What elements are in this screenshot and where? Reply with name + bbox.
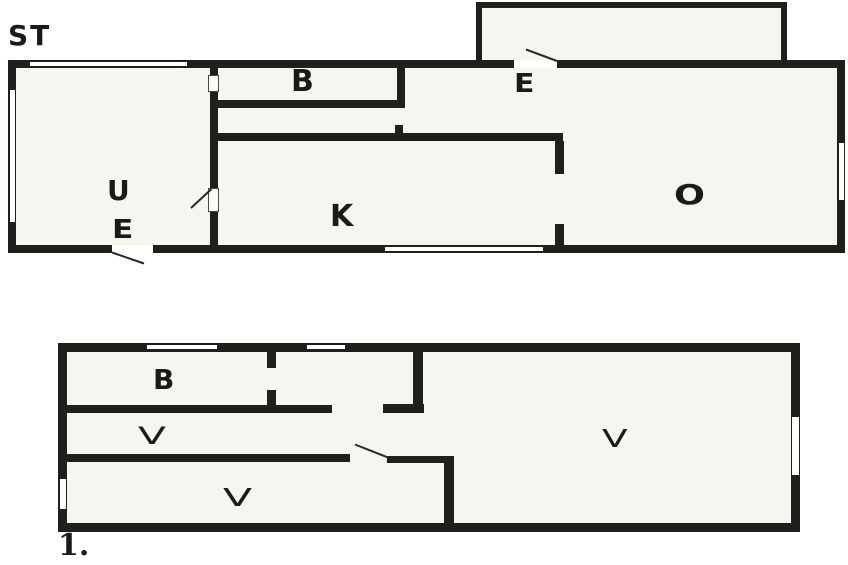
window-opening xyxy=(839,143,844,200)
upper-k-room-top-wall xyxy=(214,133,563,141)
upper-b-room-right-wall xyxy=(397,68,405,108)
room-label-k: K xyxy=(330,202,353,232)
door-opening xyxy=(514,60,557,68)
door-swing-line xyxy=(112,253,144,264)
window-opening xyxy=(307,345,345,350)
window-opening xyxy=(385,247,543,251)
upper-k-room-right-wall-segment xyxy=(555,224,564,245)
room-label-v-middle: V xyxy=(138,424,166,448)
room-label-v-large: V xyxy=(602,426,628,451)
upper-extension-outline xyxy=(476,2,787,60)
room-label-b-upper: B xyxy=(291,67,314,97)
upper-wall-stub xyxy=(395,125,403,134)
room-label-b-lower: B xyxy=(153,366,174,394)
upper-central-wall-segment xyxy=(210,212,218,245)
upper-k-room-right-wall-segment xyxy=(555,141,564,174)
upper-b-room-bottom-wall xyxy=(214,100,405,108)
lower-plan-title: 1. xyxy=(58,531,89,561)
upper-plan-outline xyxy=(8,60,845,253)
window-opening xyxy=(60,479,66,509)
room-label-e-entrance: E xyxy=(514,71,534,97)
room-label-v-bottom: V xyxy=(223,485,252,510)
upper-plan-title: ST xyxy=(8,22,51,50)
window-opening xyxy=(792,417,799,475)
lower-vertical-wall xyxy=(413,352,423,413)
door-leaf xyxy=(208,188,219,212)
window-opening xyxy=(147,345,217,350)
room-label-u: U xyxy=(107,177,130,205)
window-opening xyxy=(10,90,16,222)
room-label-o: O xyxy=(674,181,705,209)
door-leaf xyxy=(208,75,219,92)
window-opening xyxy=(30,62,187,67)
lower-middle-wall-segment xyxy=(67,454,350,462)
lower-partition-wall-segment xyxy=(267,352,276,368)
door-opening xyxy=(112,245,153,253)
floor-plan-canvas: ST B E U E K O B V V V 1. xyxy=(0,0,848,565)
lower-vertical-wall xyxy=(444,456,454,532)
lower-b-room-bottom-wall xyxy=(67,405,332,413)
room-label-e-hall: E xyxy=(112,217,133,243)
